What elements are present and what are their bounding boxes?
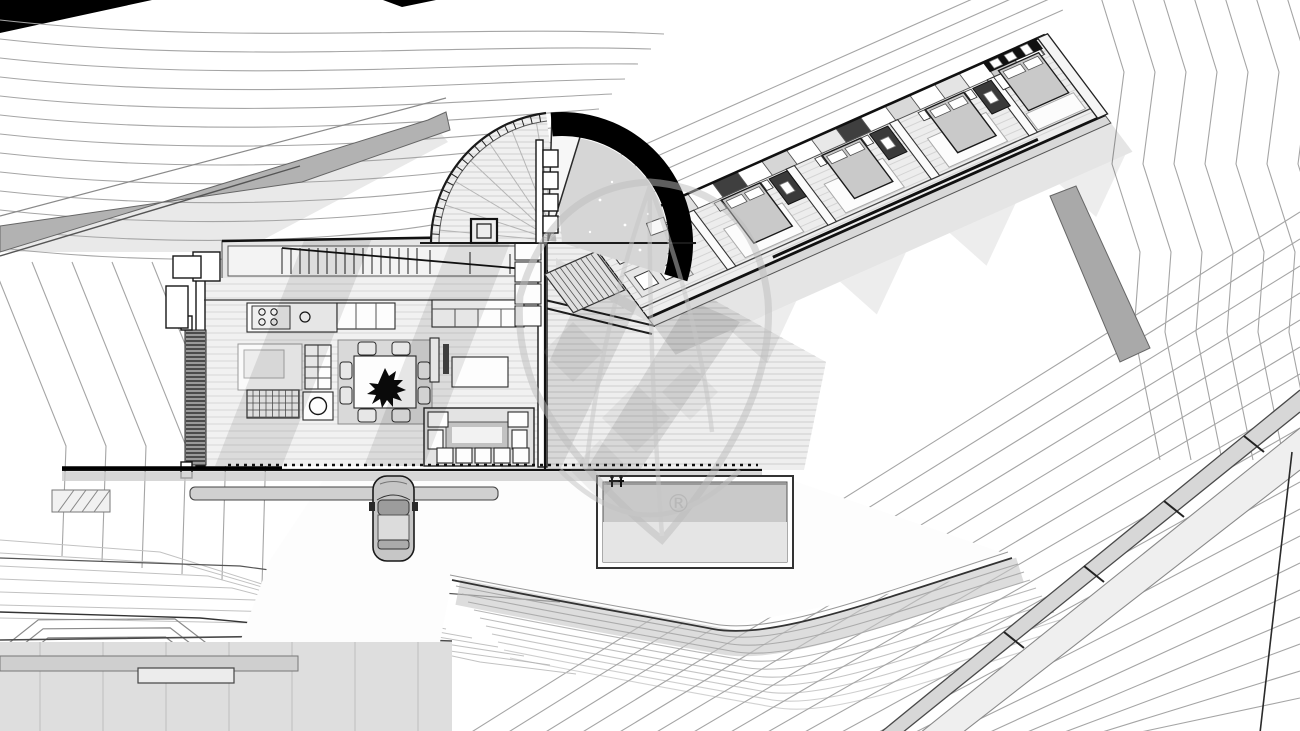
contour-line [1100,0,1300,460]
sofa-module [494,448,510,463]
louver-screen [181,316,206,478]
swimming-pool [597,475,793,568]
sofa-module [437,448,453,463]
hatch-ramp [52,490,110,512]
sofa-module [475,448,491,463]
plan-canvas: ® [0,0,1300,731]
low-wall [190,487,498,500]
mirror-icon [369,502,375,511]
sofa-module [508,412,528,427]
bench-wall [138,668,234,683]
chair [340,387,352,404]
car [369,476,418,561]
chair [340,362,352,379]
sofa-module [456,448,472,463]
terrain-dark-wedge [383,0,436,7]
retaining-wall-band [1050,186,1150,362]
mirror-icon [412,502,418,511]
terrain-dark-wedge [0,0,152,33]
site-plan-render: ® [0,0,1300,731]
spine-wall [536,140,543,243]
sofa-module [512,430,527,449]
roof-opening [471,219,497,243]
registered-symbol: ® [666,489,691,518]
lower-road-band [0,636,452,731]
sofa-module [513,448,529,463]
chair [358,342,376,355]
chair [392,342,410,355]
chair [358,409,376,422]
